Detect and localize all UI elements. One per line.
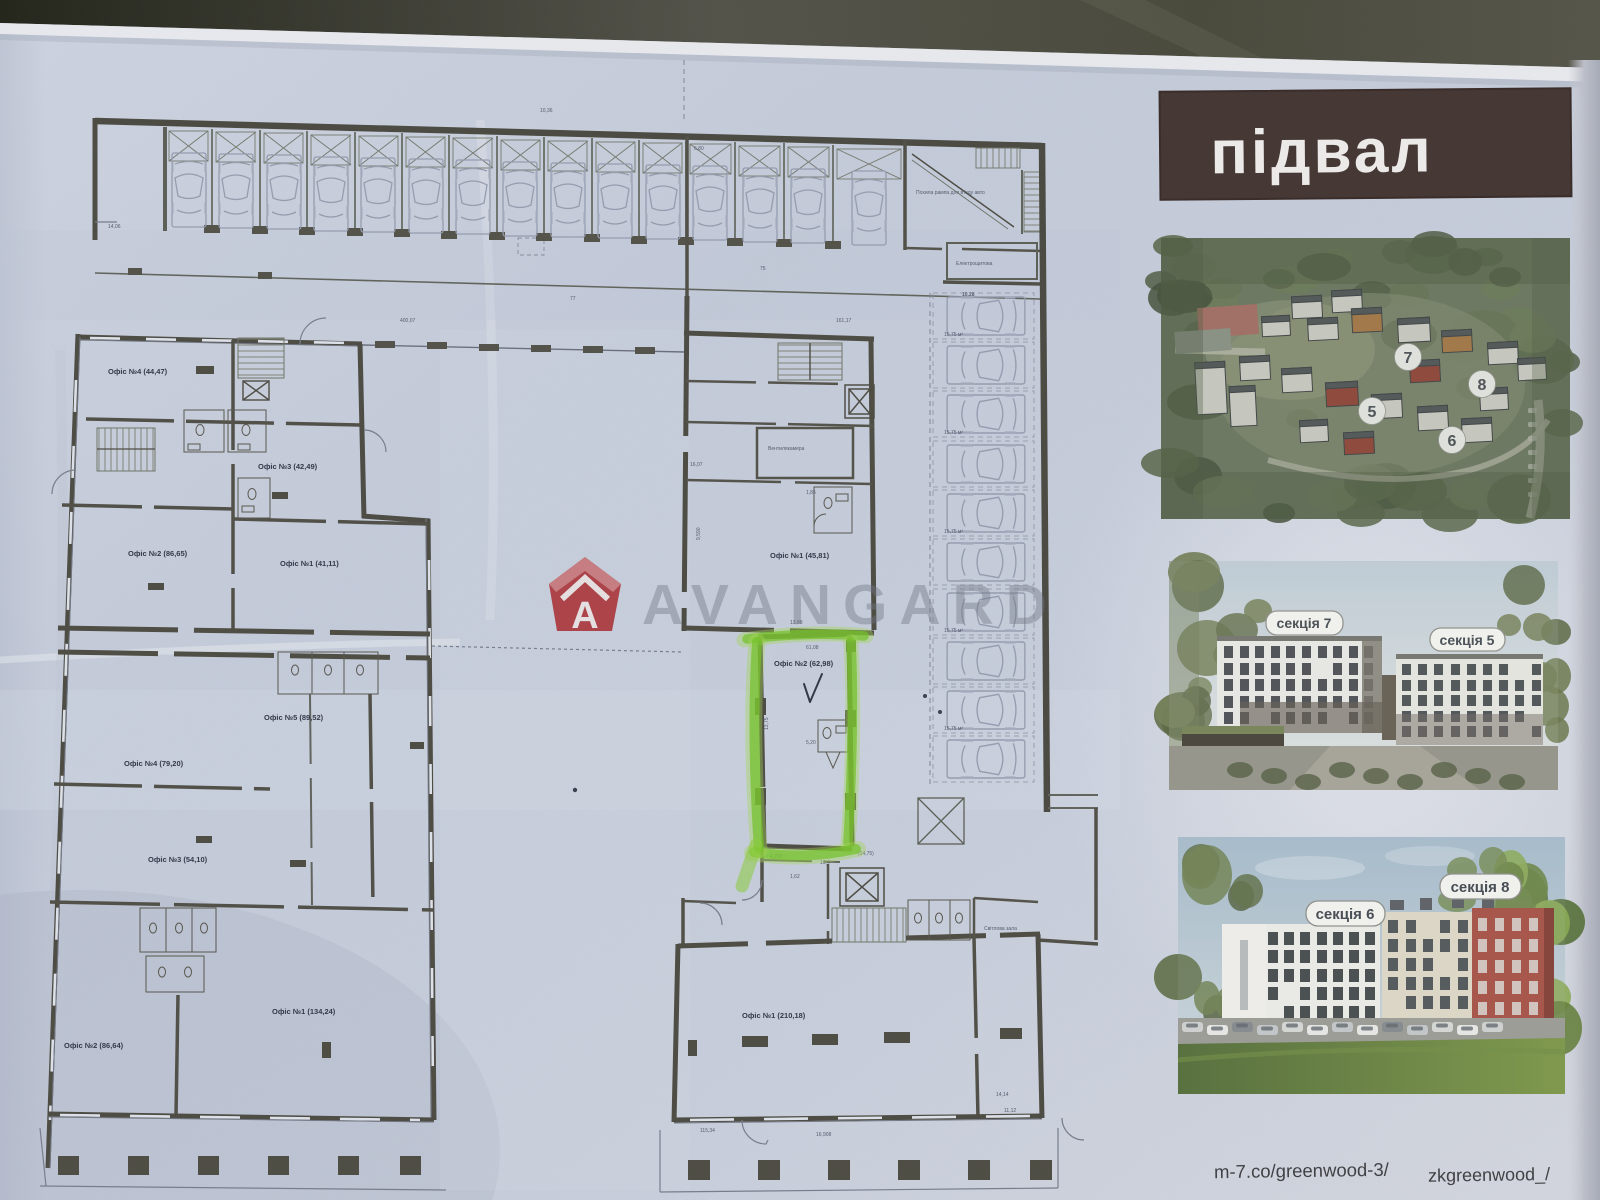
svg-text:m-7.co/greenwood-3/: m-7.co/greenwood-3/ xyxy=(1214,1159,1390,1182)
svg-text:zkgreenwood_/: zkgreenwood_/ xyxy=(1428,1164,1550,1187)
svg-text:підвал: підвал xyxy=(1210,116,1434,187)
